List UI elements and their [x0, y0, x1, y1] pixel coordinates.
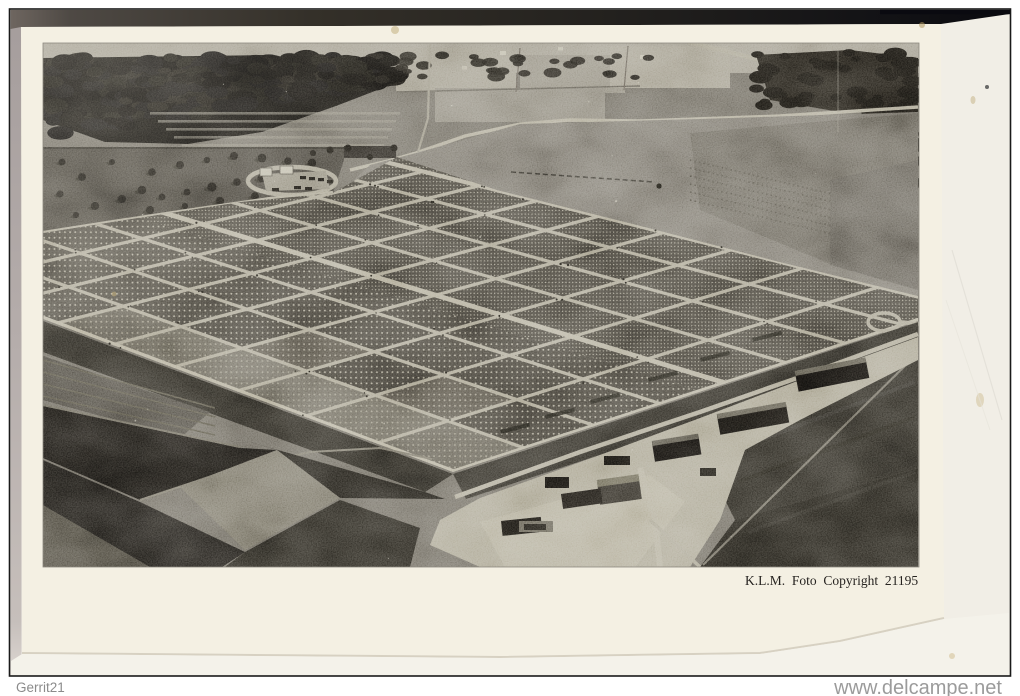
svg-text:K.L.M. Foto Copyright 21195: K.L.M. Foto Copyright 21195 [745, 573, 918, 588]
svg-text:www.delcampe.net: www.delcampe.net [833, 677, 1002, 696]
svg-text:Gerrit21: Gerrit21 [16, 680, 65, 695]
